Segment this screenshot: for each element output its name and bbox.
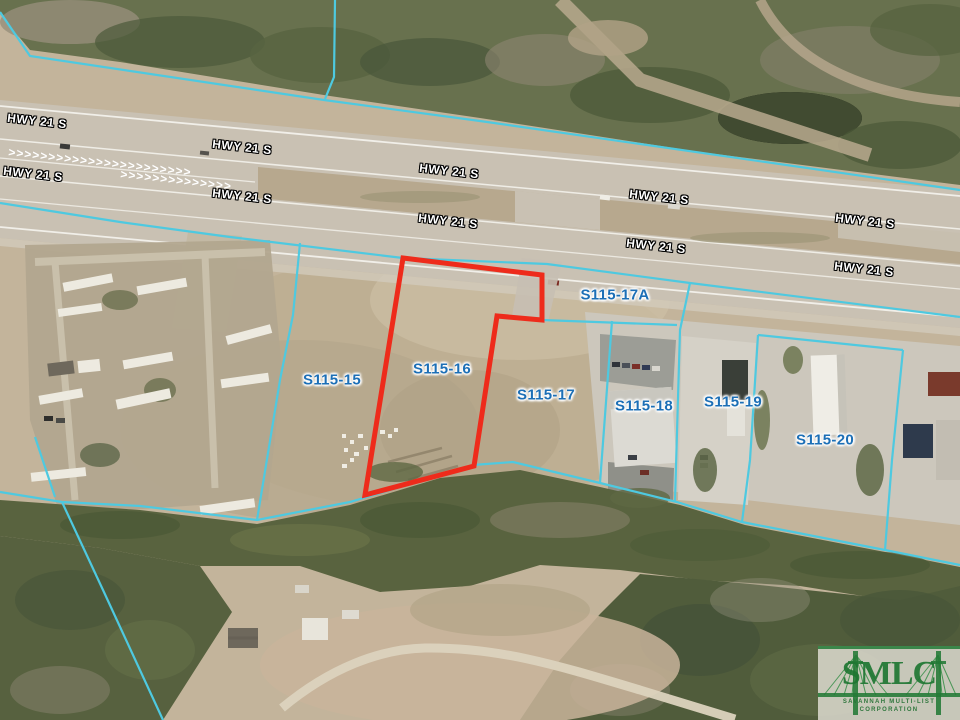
- parcel-boundary-line-1: [0, 12, 960, 190]
- parcel-label-s115-20: S115-20: [796, 432, 854, 449]
- parcel-label-s115-18: S115-18: [615, 398, 673, 415]
- parcel-label-s115-17a: S115-17A: [580, 287, 649, 304]
- logo-subtext-line2: CORPORATION: [818, 707, 960, 713]
- parcel-boundary-line-5: [0, 462, 960, 565]
- parcel-label-s115-15: S115-15: [303, 372, 361, 389]
- logo-text: SMLC: [818, 656, 960, 692]
- parcel-boundary-line-12: [758, 335, 903, 350]
- parcel-boundary-line-8: [542, 320, 677, 325]
- parcel-boundary-line-9: [600, 321, 612, 483]
- smlc-logo: SMLC SAVANNAH MULTI-LIST CORPORATION: [818, 646, 960, 720]
- parcel-boundary-line-2: [325, 0, 335, 99]
- parcel-boundary-line-7: [35, 437, 55, 497]
- logo-subtext-line1: SAVANNAH MULTI-LIST: [818, 699, 960, 705]
- parcel-boundary-line-11: [742, 335, 758, 522]
- aerial-map[interactable]: >>>>>>>>>>>>>>>>>>>>>>> >>>>>>>>>>>>>>: [0, 0, 960, 720]
- parcel-label-s115-16: S115-16: [413, 361, 471, 378]
- parcel-boundary-line-13: [885, 350, 903, 550]
- parcel-boundary-line-10: [675, 283, 690, 501]
- parcel-boundary-line-6: [62, 502, 163, 720]
- parcel-label-s115-17: S115-17: [517, 387, 575, 404]
- parcel-boundary-overlay: [0, 0, 960, 720]
- parcel-boundary-line-3: [0, 203, 960, 317]
- parcel-label-s115-19: S115-19: [704, 394, 762, 411]
- parcel-boundary-line-4: [257, 243, 300, 520]
